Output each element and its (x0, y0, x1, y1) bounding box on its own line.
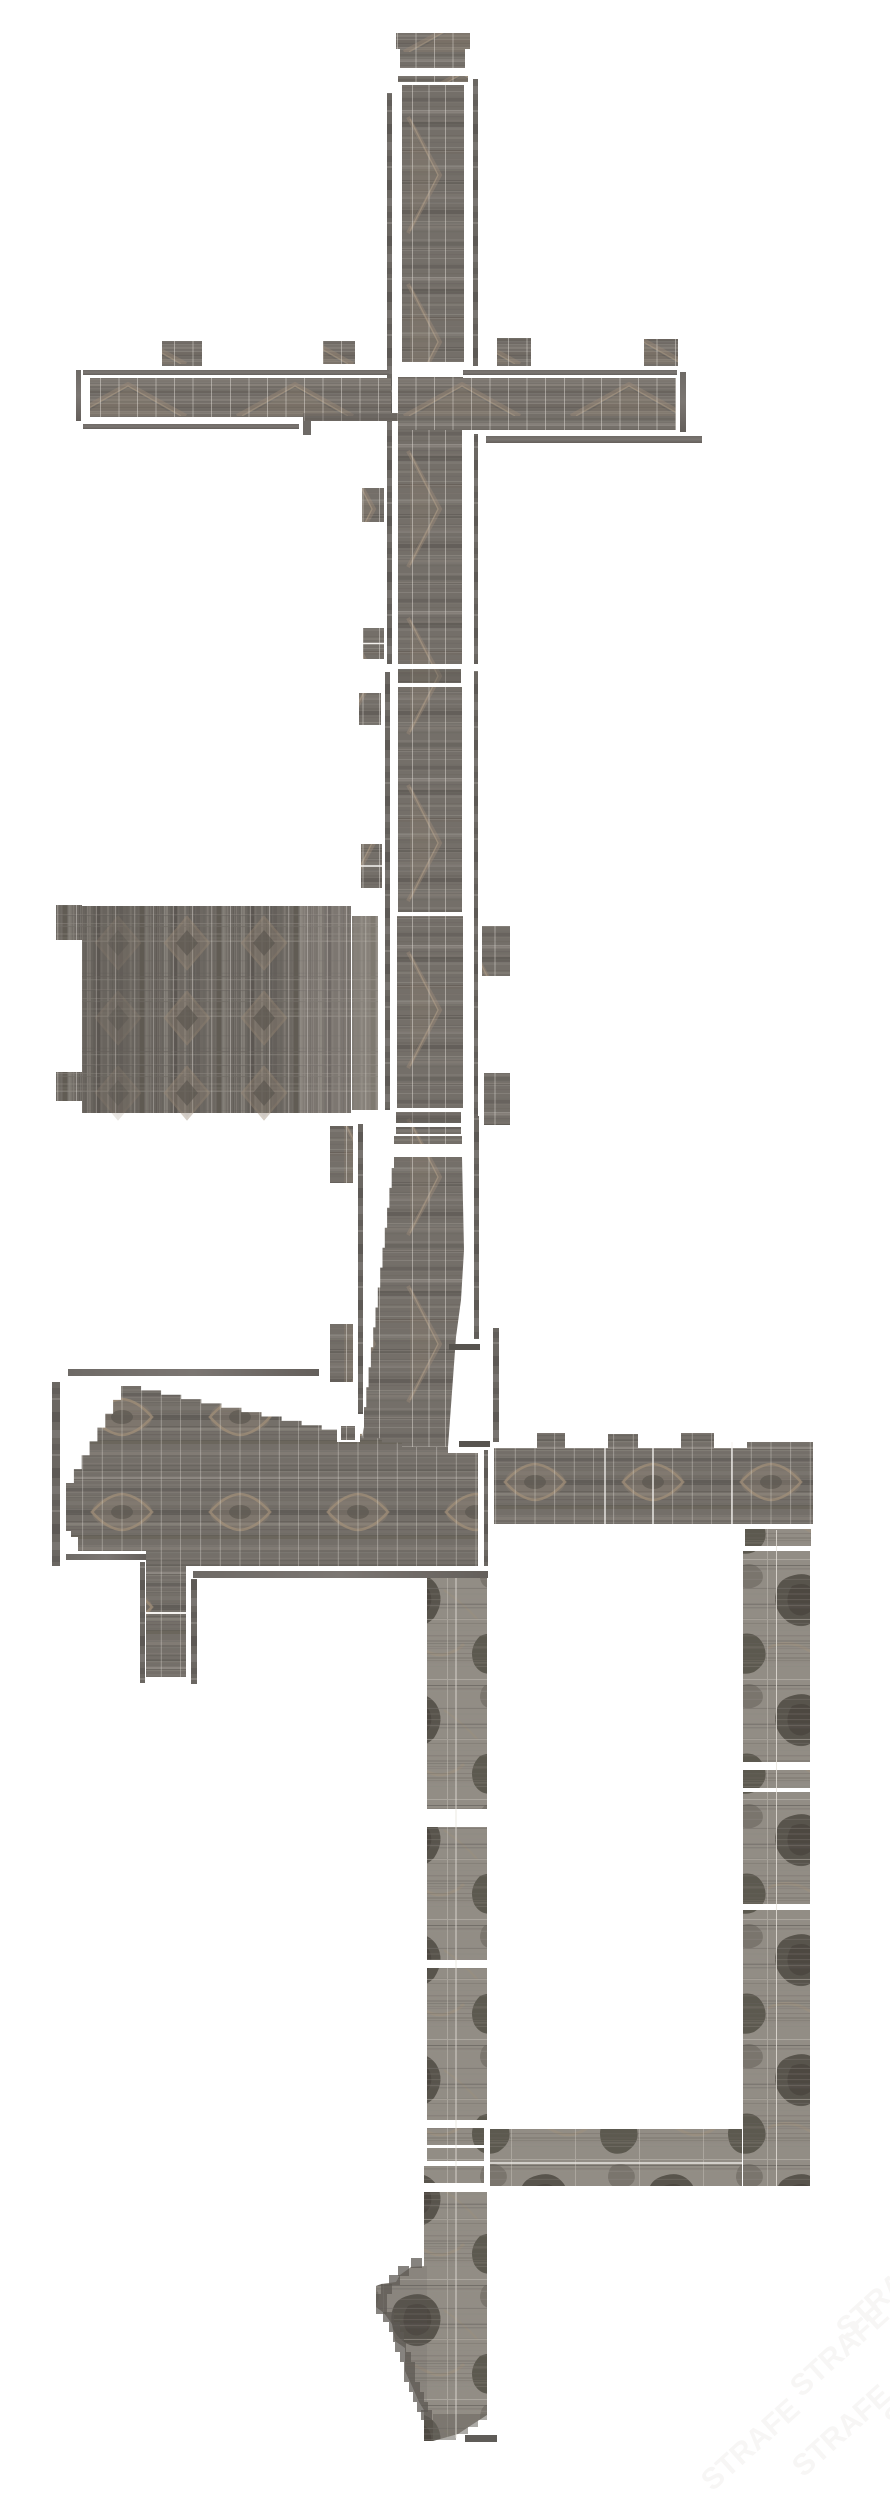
svg-text:STRAFE: STRAFE (695, 2393, 806, 2498)
svg-text:STRAFE: STRAFE (878, 2331, 890, 2436)
